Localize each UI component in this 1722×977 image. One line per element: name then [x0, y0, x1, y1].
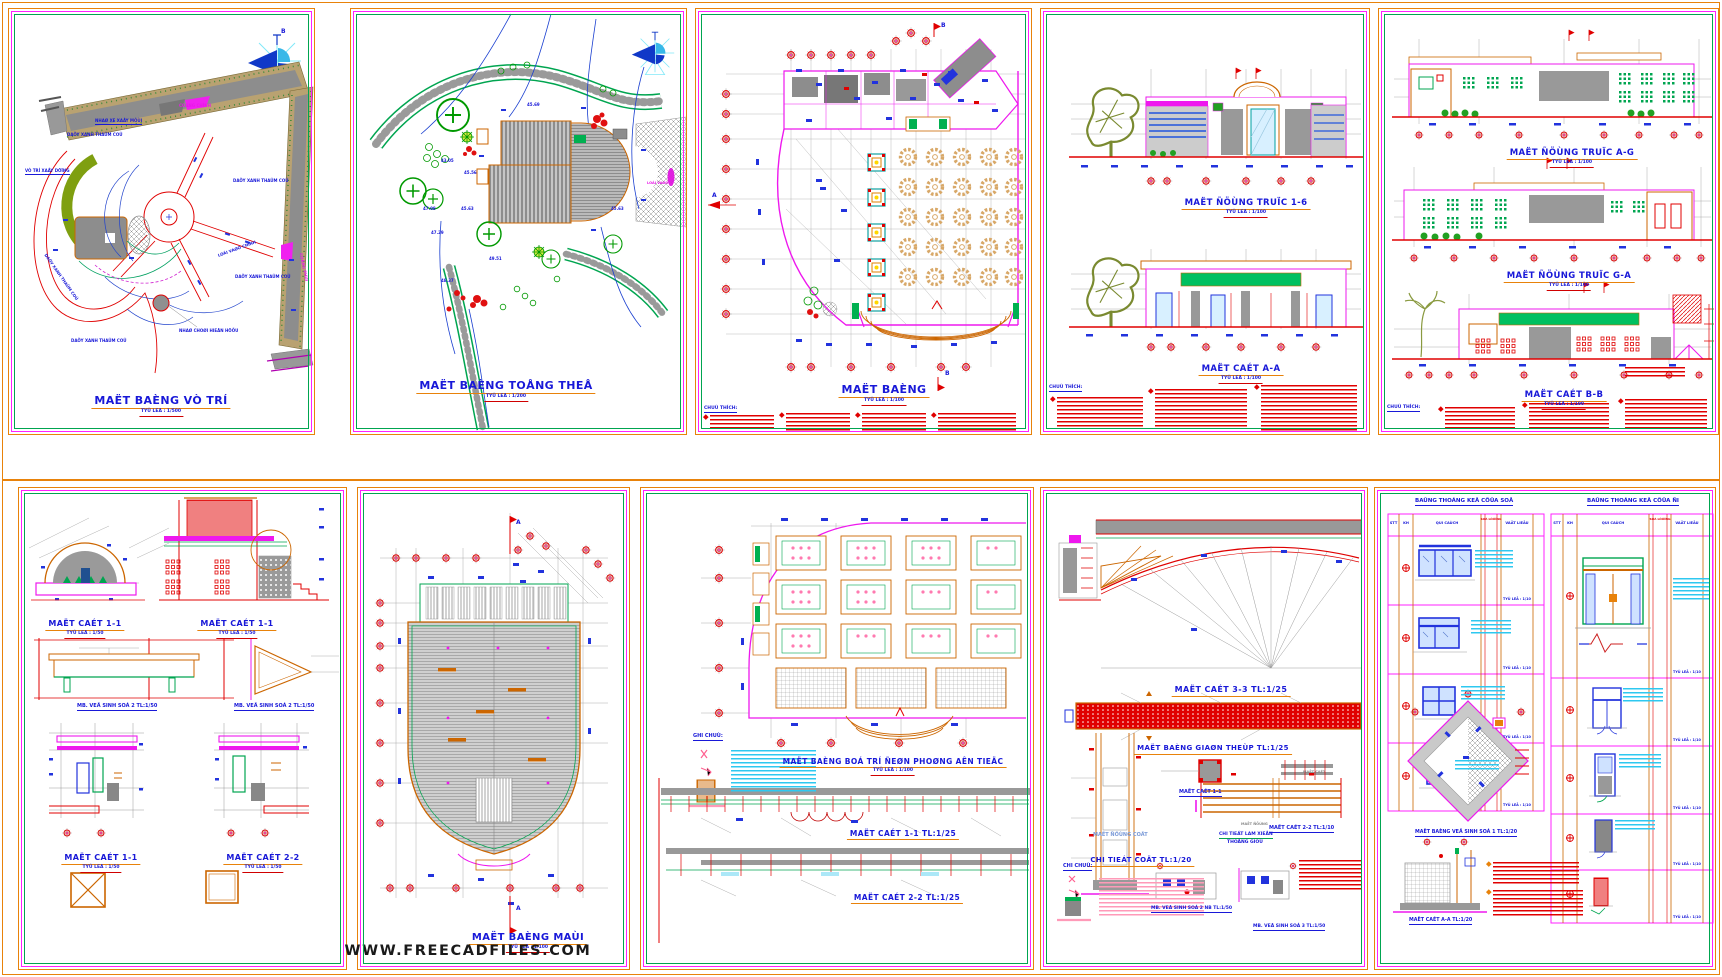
section33-title: MAËT CAÉT 3-3 TL:1/25: [1172, 678, 1291, 697]
win-h-soluong: SOÁ LÖÔÏNG: [1479, 518, 1503, 521]
door-schedule-title: BAÛNG THOÁNG KEÂ CÖÛA ÑI: [1587, 498, 1679, 506]
door-h-stt: STT: [1551, 522, 1563, 526]
wc2-plan-title-b: MB. VEÄ SINH SOÁ 2 TL:1/50: [234, 704, 314, 711]
sheet-wc-sections: MAËT CAÉT 1-1 TYÛ LEÄ : 1/50 MAËT CAÉT 1…: [18, 487, 347, 970]
site-label-green5: DAÕY XANH THAÛM COÛ: [71, 339, 126, 344]
marker-a-left: A: [712, 193, 717, 200]
wc2-plan-title-a: MB. VEÄ SINH SOÁ 2 TL:1/50: [77, 704, 157, 711]
win-h-quicach: QUI CAÙCH: [1413, 522, 1481, 526]
spot-elev-2: 43.05: [441, 159, 454, 164]
marker-b-top: B: [941, 23, 946, 30]
notes-block: [1445, 407, 1515, 429]
sheet-schedules: BAÛNG THOÁNG KEÂ CÖÛA SOÅ BAÛNG THOÁNG K…: [1374, 487, 1716, 970]
door-row2-scale: TYÛ LEÄ : 1/10: [1673, 739, 1701, 743]
elevation-ag-title: MAËT ÑÖÙNG TRUÏC A-G TYÛ LEÄ : 1/100: [1507, 141, 1638, 168]
roof-plan-graphic: [358, 488, 629, 969]
notes-block: [938, 413, 1016, 432]
sheet-elevation-section: MAËT ÑÖÙNG TRUÏC 1-6 TYÛ LEÄ : 1/100 MAË…: [1040, 8, 1370, 435]
win-row2-scale: TYÛ LEÄ : 1/10: [1503, 667, 1531, 671]
master-plan-graphic: [351, 9, 686, 434]
notes-block: [1299, 860, 1361, 890]
col-elev-label: MAËT ÑÖÙNG COÄT: [1093, 833, 1148, 839]
win-h-kh: KH: [1399, 522, 1413, 526]
ceiling-plan-graphic: [641, 488, 1033, 969]
wc-section11-title: MAËT CAÉT 1-1 TYÛ LEÄ : 1/50: [61, 846, 140, 873]
lamella-title-1: CHI TIEÁT LAM XIEÂN: [1219, 832, 1273, 839]
sheet-master-plan: 45.69 43.05 45.56 47.08 45.63 47.29 49.5…: [350, 8, 687, 435]
wc-section-aa-title: MAËT CAÉT A-A TL:1/20: [1409, 918, 1472, 925]
sheet-site-location-plan: B NHAØ XE XAÂY MÔÙI DAÕY XANH THAÛM COÛ …: [8, 8, 315, 435]
site-label-green3: DAÕY XANH THAÛM COÛ: [235, 275, 290, 280]
sheet-ceiling-plan: GHI CHUÙ: MAËT BAÈNG BOÁ TRÍ ÑEØN PHOØNG…: [640, 487, 1034, 970]
note-header: CHUÙ THÍCH:: [704, 406, 737, 413]
sheet2-title: MAËT BAÈNG TOÅNG THEÅ TYÛ LEÄ : 1/200: [416, 375, 595, 402]
lamella-elev-label: MAËT CAÉT: [1303, 770, 1325, 774]
wc3-detail-title: MB. VEÄ SINH SOÁ 3 TL:1/50: [1253, 924, 1325, 931]
sheet1-title: MAËT BAÈNG VÒ TRÍ TYÛ LEÄ : 1/500: [91, 390, 230, 417]
elevation-ga-title: MAËT ÑÖÙNG TRUÏC G-A TYÛ LEÄ : 1/100: [1504, 264, 1635, 291]
wc-sections-graphic: [19, 488, 346, 969]
watermark: WWW.FREECADFILES.COM: [345, 943, 592, 959]
section-a-a-title: MAËT CAÉT A-A TYÛ LEÄ : 1/100: [1199, 357, 1284, 384]
site-label-parking: NHAØ XE XAÂY MÔÙI: [95, 119, 142, 125]
win-h-vatlieu: VAÄT LIEÄU: [1501, 522, 1533, 526]
notes-block: [1493, 890, 1583, 916]
lamella-sec-label: MAËT ÑÖÙNG: [1241, 822, 1268, 826]
door-h-vatlieu: VAÄT LIEÄU: [1671, 522, 1703, 526]
notes-block: [1261, 385, 1357, 433]
spot-elev-8: 48.37: [441, 279, 454, 284]
note-header: CHUÙ THÍCH:: [1049, 385, 1082, 392]
door-row4-scale: TYÛ LEÄ : 1/10: [1673, 863, 1701, 867]
sheet-elevations-bb: MAËT ÑÖÙNG TRUÏC A-G TYÛ LEÄ : 1/100 MAË…: [1378, 8, 1719, 435]
roof-flag-a-bottom: A: [516, 906, 521, 913]
notes-block: [786, 413, 850, 432]
win-row1-notes: [1475, 550, 1513, 568]
north-label: B: [281, 29, 286, 36]
notes-block: [1625, 399, 1707, 431]
site-label-green2: DAÕY XANH THAÛM COÛ: [233, 179, 288, 184]
win-row2-notes: [1471, 620, 1511, 636]
ceiling-plan-title: MAËT BAÈNG BOÁ TRÍ ÑEØN PHOØNG AÊN TIEÄC…: [780, 750, 1007, 776]
spot-elev-1: 45.69: [527, 103, 540, 108]
win-row1-scale: TYÛ LEÄ : 1/10: [1503, 598, 1531, 602]
spot-elev-4: 47.08: [423, 207, 436, 212]
win-h-stt: STT: [1388, 522, 1399, 526]
legend-header: CHI CHUÙ:: [1063, 864, 1092, 871]
spot-elev-7: 49.51: [489, 257, 502, 262]
door-row4-notes: [1615, 820, 1655, 832]
door-row1-scale: TYÛ LEÄ : 1/10: [1673, 671, 1701, 675]
steel-truss-plan-title: MAËT BAÈNG GIAØN THEÙP TL:1/25: [1134, 736, 1292, 755]
sheet-roof-plan: A A MAËT BAÈNG MAÙI TYÛ LEÄ : 1/100 WWW.…: [357, 487, 630, 970]
site-location-plan-graphic: [9, 9, 314, 434]
wc2-detail-title: MB. VEÄ SINH SOÁ 2 NB TL:1/50: [1151, 906, 1232, 913]
elevation-1-6-title: MAËT ÑÖÙNG TRUÏC 1-6 TYÛ LEÄ : 1/100: [1182, 191, 1311, 218]
win-row4-scale: TYÛ LEÄ : 1/10: [1503, 804, 1531, 808]
spot-elev-9: 45.63: [611, 207, 624, 212]
win-row4-notes: [1455, 760, 1499, 772]
wall-section-title: MAËT CAÉT 1-1 TYÛ LEÄ : 1/50: [197, 612, 276, 639]
wc-section22-title: MAËT CAÉT 2-2 TYÛ LEÄ : 1/50: [223, 846, 302, 873]
door-h-quicach: QUI CAÙCH: [1577, 522, 1649, 526]
notes-block: [1155, 389, 1247, 429]
door-row5-scale: TYÛ LEÄ : 1/10: [1673, 916, 1701, 920]
notes-block: [1493, 862, 1579, 884]
legend-header: GHI CHUÙ:: [693, 734, 723, 741]
roof-flag-a-top: A: [516, 520, 521, 527]
truss-details-graphic: [1041, 488, 1367, 969]
ceiling-sec2-title: MAËT CAÉT 2-2 TL:1/25: [851, 886, 963, 904]
notes-block: [862, 413, 926, 432]
col-sec22-title: MAËT CAÉT 2-2 TL:1/10: [1269, 826, 1334, 833]
door-row3-scale: TYÛ LEÄ : 1/10: [1673, 807, 1701, 811]
door-row1-notes: [1673, 578, 1709, 600]
site-label-main-gate: COÅNG CHÍNH: [179, 104, 211, 109]
entry-label: LOÁI VAØO: [647, 181, 668, 185]
window-schedule-title: BAÛNG THOÁNG KEÂ CÖÛA SOÅ: [1415, 498, 1513, 506]
col-detail-title: CHI TIEÁT COÄT TL:1/20: [1087, 848, 1194, 867]
dome-section-title: MAËT CAÉT 1-1 TYÛ LEÄ : 1/50: [45, 612, 124, 639]
notes-block: [1057, 397, 1143, 427]
marker-b-bottom: B: [945, 371, 950, 378]
win-row3-notes: [1461, 686, 1505, 700]
lamella-title-2: THOÂNG GIOÙ: [1227, 840, 1263, 845]
spot-elev-6: 47.29: [431, 231, 444, 236]
sheet-truss-details: MAËT CAÉT 3-3 TL:1/25 MAËT BAÈNG GIAØN T…: [1040, 487, 1368, 970]
section-bb-title: MAËT CAÉT B-B TYÛ LEÄ : 1/100: [1522, 383, 1607, 410]
note-header: CHUÙ THÍCH:: [1387, 405, 1420, 412]
site-label-pavilion: NHAØ CHOØI HIEÄN HÖÕU: [179, 329, 238, 334]
sheet-floor-plan: B B A MAËT BAÈNG TYÛ LEÄ : 1/100 CHUÙ TH…: [695, 8, 1032, 435]
win-row3-scale: TYÛ LEÄ : 1/10: [1503, 736, 1531, 740]
door-row2-notes: [1623, 688, 1663, 704]
door-h-kh: KH: [1563, 522, 1577, 526]
site-label-green1: DAÕY XANH THAÛM COÛ: [67, 133, 122, 138]
cad-sheet-collage: { "page": {"watermark": "WWW.FREECADFILE…: [0, 0, 1722, 977]
door-row3-notes: [1619, 754, 1661, 770]
notes-block: [1625, 367, 1685, 377]
site-label-location: VÒ TRÍ XAÂY DÖÏNG: [25, 169, 70, 175]
spot-elev-5: 45.63: [461, 207, 474, 212]
floor-plan-graphic: [696, 9, 1031, 434]
notes-block: [710, 415, 774, 432]
col-sec11-title: MAËT CAÉT 1-1: [1179, 790, 1222, 797]
spot-elev-3: 45.56: [464, 171, 477, 176]
wc1-plan-title: MAËT BAÈNG VEÄ SINH SOÁ 1 TL:1/20: [1415, 830, 1517, 837]
ceiling-sec1-title: MAËT CAÉT 1-1 TL:1/25: [847, 822, 959, 840]
door-h-soluong: SOÁ LÖÔÏNG: [1649, 518, 1671, 521]
sheet3-title: MAËT BAÈNG TYÛ LEÄ : 1/100: [839, 379, 930, 406]
